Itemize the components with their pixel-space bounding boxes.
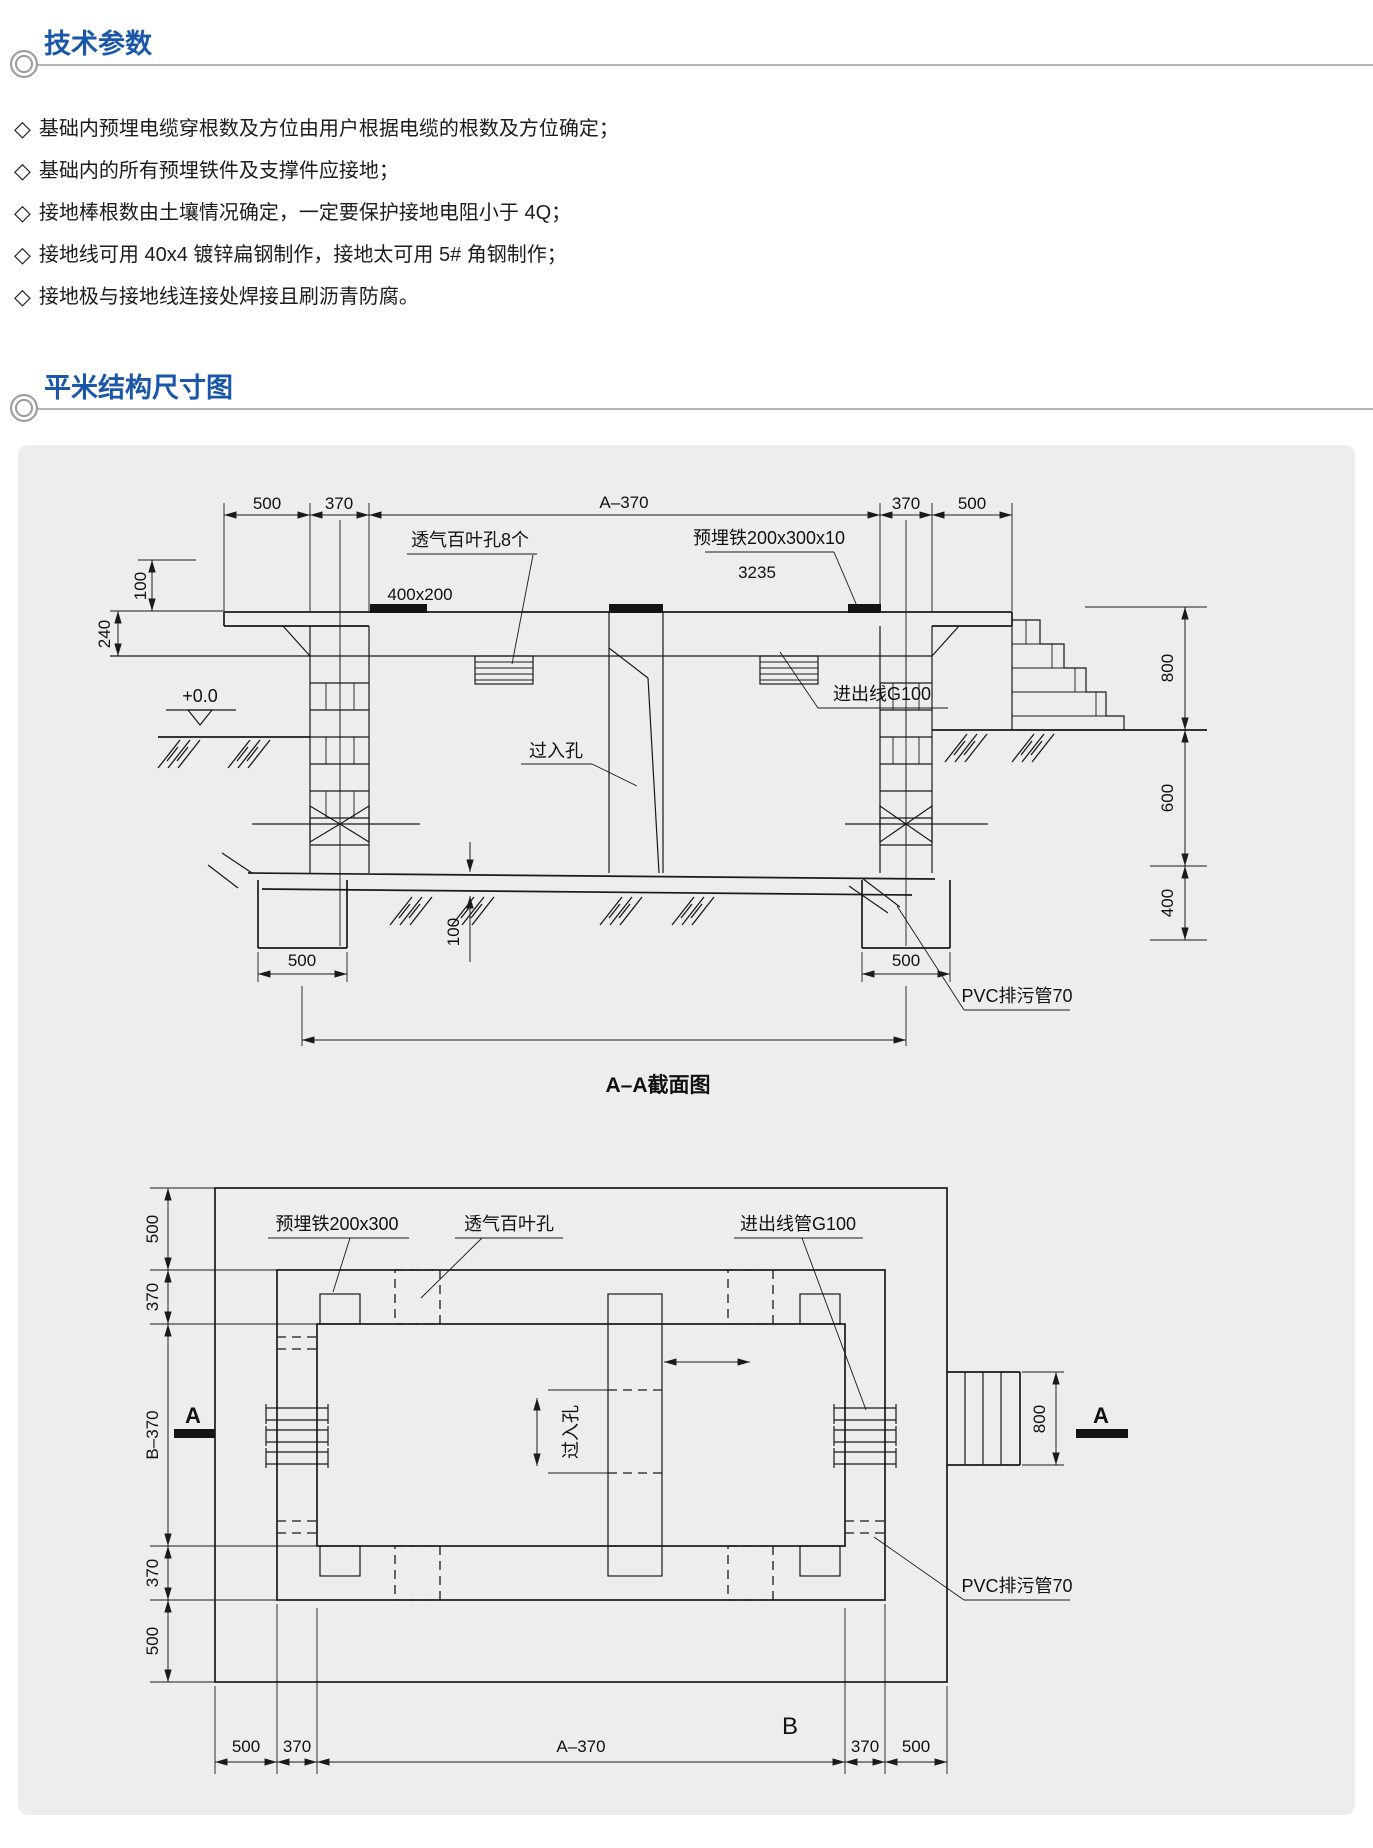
section-view-title: A–A截面图 <box>605 1074 710 1097</box>
section-marker-label: A <box>185 1403 201 1428</box>
dim-label: 500 <box>253 494 281 513</box>
dim-label: 500 <box>288 951 316 970</box>
louver-label: 透气百叶孔 <box>464 1214 554 1234</box>
plan-structure <box>215 1188 1020 1682</box>
section-right-dimensions: 800 600 400 <box>1085 607 1207 940</box>
dim-label: 800 <box>1158 654 1177 682</box>
section-view: 500 370 A–370 370 500 100 240 +0.0 <box>95 493 1207 1097</box>
plan-annotations: 预埋铁200x300 透气百叶孔 进出线管G100 PVC排污管70 过入孔 <box>268 1214 1073 1600</box>
section-bottom-dimensions: 500 500 100 <box>258 842 950 1046</box>
pvc-pipe-label: PVC排污管70 <box>961 1576 1072 1596</box>
dim-label: 370 <box>143 1559 162 1587</box>
dim-label: 500 <box>143 1215 162 1243</box>
section-top-dimension: 500 370 A–370 370 500 <box>224 493 1012 611</box>
section-structure <box>110 520 1207 948</box>
dim-label: B–370 <box>143 1410 162 1459</box>
dim-label: 370 <box>892 494 920 513</box>
dim-label: A–370 <box>599 493 648 512</box>
dim-label: 500 <box>143 1627 162 1655</box>
louver-label: 透气百叶孔8个 <box>411 530 529 550</box>
dim-label: 100 <box>444 918 463 946</box>
dim-label: 500 <box>232 1737 260 1756</box>
section-ground-left: +0.0 <box>158 686 310 768</box>
dim-label: 370 <box>143 1283 162 1311</box>
plan-view-label: B <box>782 1713 798 1740</box>
pvc-pipe-label: PVC排污管70 <box>961 986 1072 1006</box>
dim-label: 800 <box>1030 1405 1049 1433</box>
dim-label: A–370 <box>556 1737 605 1756</box>
dim-label: 500 <box>902 1737 930 1756</box>
dim-label: 500 <box>958 494 986 513</box>
dim-label: 370 <box>283 1737 311 1756</box>
technical-drawing: 500 370 A–370 370 500 100 240 +0.0 <box>0 0 1373 1848</box>
plan-bottom-dimensions: 500 370 A–370 370 500 B <box>215 1604 947 1774</box>
dim-label: 370 <box>325 494 353 513</box>
embedded-plate-label: 预埋铁200x300 <box>275 1214 398 1234</box>
section-left-dimensions: 100 240 <box>95 560 224 656</box>
dim-label: 400 <box>1158 889 1177 917</box>
manhole-label: 过入孔 <box>529 741 583 761</box>
level-label: +0.0 <box>182 686 218 706</box>
manhole-label: 过入孔 <box>561 1405 581 1459</box>
conduit-label: 进出线管G100 <box>740 1214 856 1234</box>
dim-label: 500 <box>892 951 920 970</box>
total-dim-label: 3235 <box>738 563 776 582</box>
page: 技术参数 ◇基础内预埋电缆穿根数及方位由用户根据电缆的根数及方位确定； ◇基础内… <box>0 0 1373 1848</box>
dim-label: 600 <box>1158 784 1177 812</box>
conduit-label: 进出线G100 <box>833 684 931 704</box>
section-annotations: 400x200 透气百叶孔8个 预埋铁200x300x10 3235 过入孔 进… <box>387 528 1072 1010</box>
plan-left-dimensions: 500 370 B–370 370 500 <box>143 1188 317 1682</box>
section-marker-label: A <box>1093 1403 1109 1428</box>
embedded-plate-label: 预埋铁200x300x10 <box>693 528 845 548</box>
dim-label: 100 <box>131 572 150 600</box>
opening-size-label: 400x200 <box>387 585 452 604</box>
dim-label: 370 <box>851 1737 879 1756</box>
plan-view: 预埋铁200x300 透气百叶孔 进出线管G100 PVC排污管70 过入孔 <box>143 1188 1128 1774</box>
dim-label: 240 <box>95 620 114 648</box>
